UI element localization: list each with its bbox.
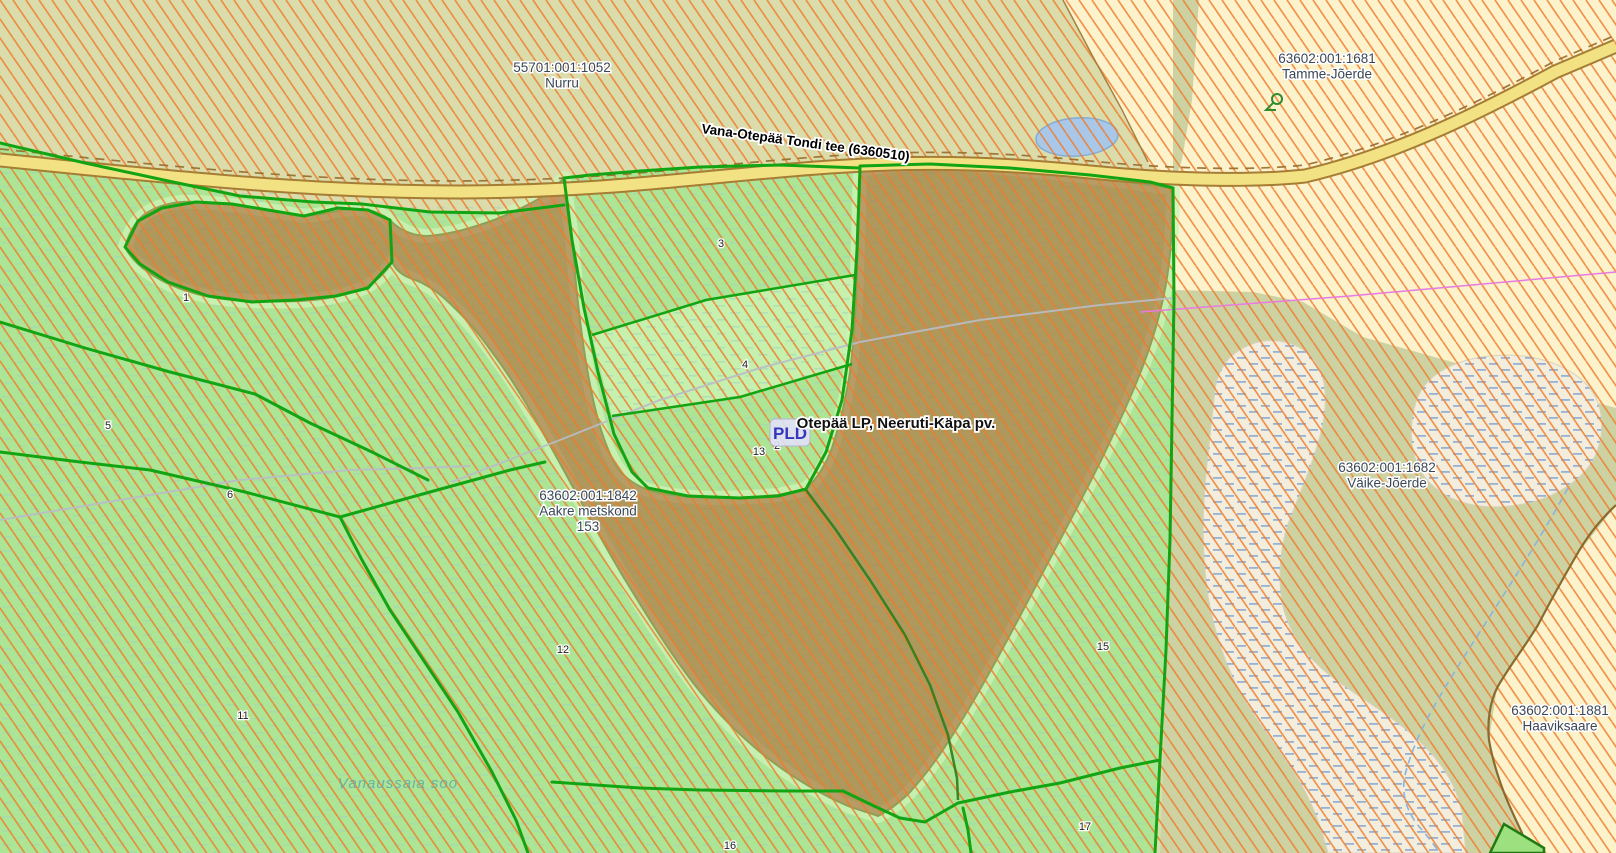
parcel-number-4: 4: [742, 359, 748, 371]
protected-area-name: Otepää LP, Neeruti-Käpa pv.: [797, 415, 996, 432]
bog-name-label: Vanaussaia soo: [338, 775, 458, 792]
parcel-number-13: 13: [753, 446, 765, 458]
cadastral-map[interactable]: 55701:001:1052Nurru63602:001:1681Tamme-J…: [0, 0, 1616, 853]
cadastral-label-tamme-joerde: 63602:001:1681Tamme-Jõerde: [1278, 51, 1376, 82]
parcel-number-17: 17: [1079, 821, 1091, 833]
parcel-number-11: 11: [237, 710, 248, 722]
cadastral-label-vaike-joerde: 63602:001:1682Väike-Jõerde: [1338, 460, 1436, 491]
parcel-number-3: 3: [718, 238, 724, 250]
parcel-number-15: 15: [1097, 641, 1109, 653]
map-viewport[interactable]: 55701:001:1052Nurru63602:001:1681Tamme-J…: [0, 0, 1616, 853]
parcel-number-1: 1: [183, 292, 189, 304]
cadastral-label-haaviksaare: 63602:001:1881Haaviksaare: [1511, 703, 1609, 734]
parcel-number-16: 16: [724, 840, 736, 852]
parcel-number-5: 5: [105, 420, 111, 432]
parcel-number-12: 12: [557, 644, 569, 656]
parcel-number-6: 6: [227, 489, 233, 501]
